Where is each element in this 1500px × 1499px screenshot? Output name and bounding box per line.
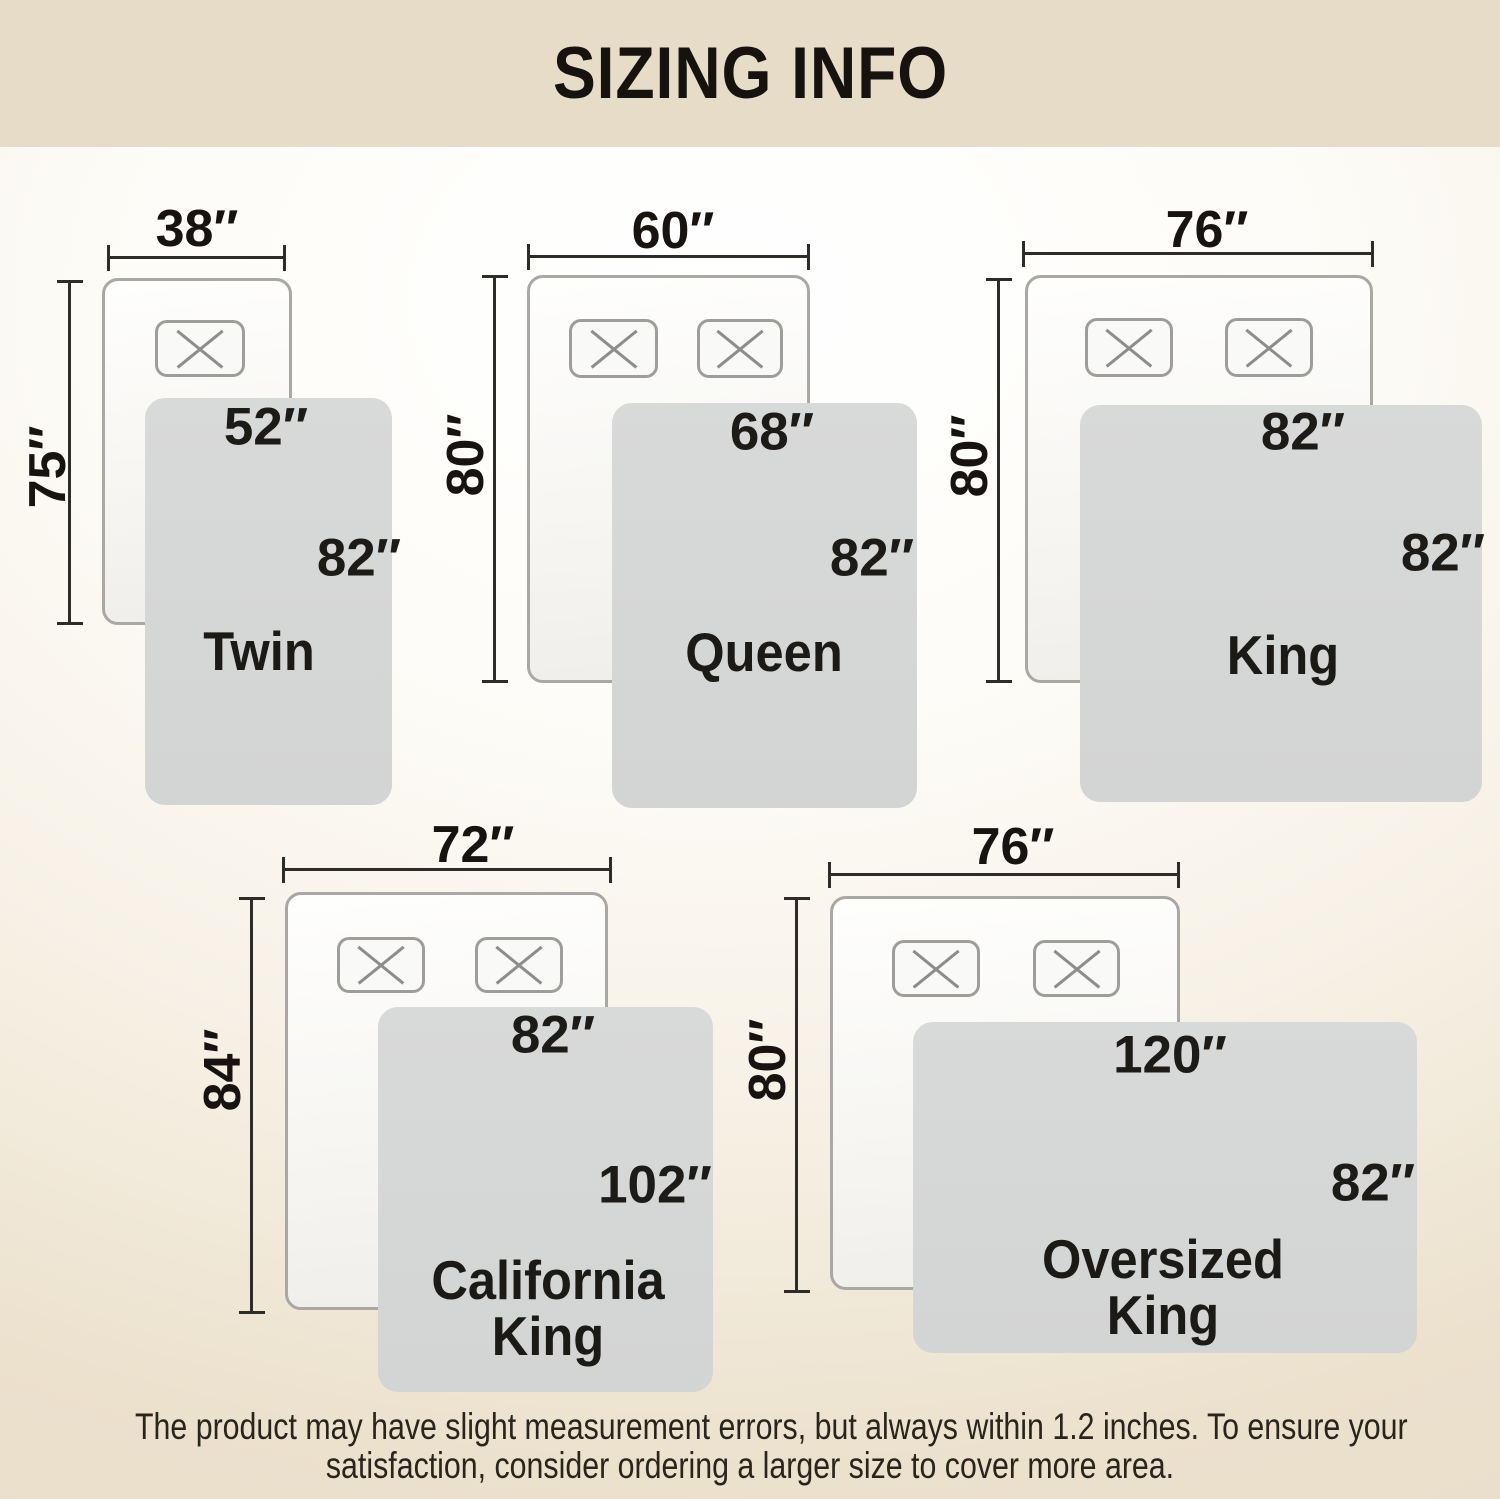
dimension-tick: [283, 245, 286, 271]
blanket-width-label: 68″: [730, 402, 814, 463]
blanket-length-label: 102″: [598, 1155, 712, 1216]
pillow: [569, 319, 658, 378]
dimension-tick: [482, 680, 508, 683]
dimension-tick: [1022, 241, 1025, 267]
dimension-tick: [1371, 241, 1374, 267]
pillow: [1225, 318, 1313, 377]
bed-length-label: 80″: [436, 414, 496, 497]
bed-width-label: 72″: [432, 815, 515, 875]
blanket-length-label: 82″: [1331, 1153, 1415, 1214]
pillow: [697, 319, 783, 378]
pillow: [337, 937, 425, 993]
blanket-length-label: 82″: [1401, 523, 1485, 584]
dimension-tick: [784, 1290, 810, 1293]
blanket-width-label: 120″: [1113, 1025, 1227, 1086]
bed-width-label: 76″: [1166, 200, 1249, 260]
bed-length-label: 84″: [193, 1029, 253, 1112]
footer-line-1: The product may have slight measurement …: [135, 1407, 1365, 1446]
blanket-width-label: 82″: [511, 1005, 595, 1066]
bed-width-label: 76″: [972, 817, 1055, 877]
blanket: [612, 403, 917, 808]
size-name-line: King: [1042, 1287, 1284, 1343]
size-name-line: Oversized: [1042, 1231, 1284, 1287]
footer-note: The product may have slight measurement …: [0, 1407, 1500, 1485]
footer-line-2: satisfaction, consider ordering a larger…: [135, 1446, 1365, 1485]
size-name-line: California: [431, 1252, 664, 1308]
size-name: King: [1227, 627, 1339, 683]
dimension-tick: [807, 244, 810, 270]
size-name: Twin: [203, 623, 314, 679]
bed-length-label: 80″: [738, 1019, 798, 1102]
blanket: [145, 398, 392, 805]
dimension-tick: [527, 244, 530, 270]
dimension-tick: [57, 622, 83, 625]
pillow: [475, 937, 563, 993]
dimension-tick: [482, 275, 508, 278]
dimension-tick: [107, 245, 110, 271]
bed-width-label: 38″: [156, 199, 239, 259]
dimension-tick: [986, 278, 1012, 281]
size-diagram-canvas: 38″75″52″82″Twin60″80″68″82″Queen76″80″8…: [0, 0, 1500, 1499]
size-name: CaliforniaKing: [431, 1252, 664, 1364]
dimension-tick: [828, 862, 831, 888]
blanket-width-label: 82″: [1261, 402, 1345, 463]
pillow: [1085, 318, 1173, 377]
dimension-tick: [239, 1311, 265, 1314]
blanket-length-label: 82″: [830, 528, 914, 589]
pillow: [155, 320, 245, 377]
size-name-line: Queen: [685, 624, 842, 680]
pillow: [1033, 940, 1120, 997]
dimension-tick: [986, 680, 1012, 683]
dimension-tick: [57, 280, 83, 283]
dimension-tick: [784, 897, 810, 900]
blanket-width-label: 52″: [224, 397, 308, 458]
blanket-length-label: 82″: [317, 528, 401, 589]
sizing-infographic: SIZING INFO 38″75″52″82″Twin60″80″68″82″…: [0, 0, 1500, 1499]
dimension-tick: [282, 857, 285, 883]
size-name: OversizedKing: [1042, 1231, 1284, 1343]
blanket: [1080, 405, 1482, 802]
size-name-line: Twin: [203, 623, 314, 679]
dimension-tick: [1177, 862, 1180, 888]
size-name-line: King: [1227, 627, 1339, 683]
bed-length-label: 75″: [18, 426, 78, 509]
size-name: Queen: [685, 624, 842, 680]
bed-width-label: 60″: [632, 201, 715, 261]
pillow: [892, 940, 980, 997]
size-name-line: King: [431, 1308, 664, 1364]
dimension-tick: [239, 897, 265, 900]
dimension-tick: [609, 857, 612, 883]
bed-length-label: 80″: [940, 415, 1000, 498]
